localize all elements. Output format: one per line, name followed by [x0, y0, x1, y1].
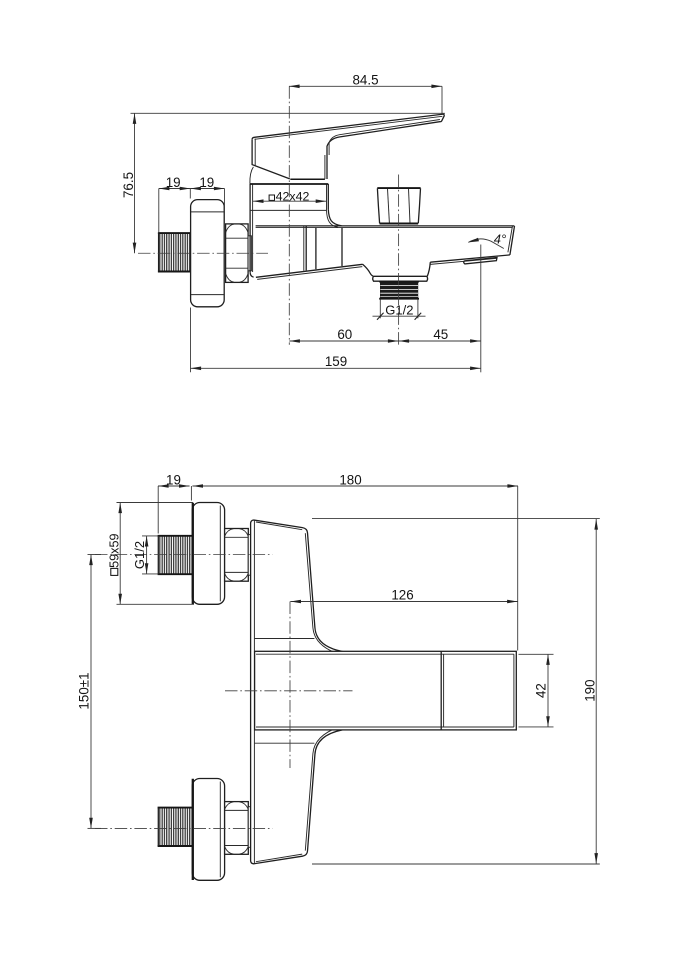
svg-text:150±1: 150±1 — [77, 672, 92, 709]
svg-text:126: 126 — [391, 588, 413, 603]
svg-text:G1/2: G1/2 — [385, 302, 413, 317]
svg-text:76.5: 76.5 — [121, 172, 136, 198]
svg-text:42x42: 42x42 — [276, 190, 310, 204]
svg-text:19: 19 — [166, 472, 181, 487]
svg-text:45: 45 — [433, 327, 448, 342]
svg-text:4°: 4° — [494, 232, 506, 247]
svg-text:60: 60 — [337, 327, 352, 342]
svg-text:19: 19 — [166, 175, 181, 190]
svg-text:19: 19 — [199, 175, 214, 190]
svg-text:190: 190 — [582, 679, 597, 701]
svg-text:59x59: 59x59 — [108, 534, 122, 568]
svg-text:180: 180 — [339, 472, 361, 487]
svg-text:G1/2: G1/2 — [132, 541, 147, 569]
svg-text:84.5: 84.5 — [352, 73, 378, 88]
svg-text:42: 42 — [534, 683, 549, 698]
svg-text:159: 159 — [325, 354, 347, 369]
